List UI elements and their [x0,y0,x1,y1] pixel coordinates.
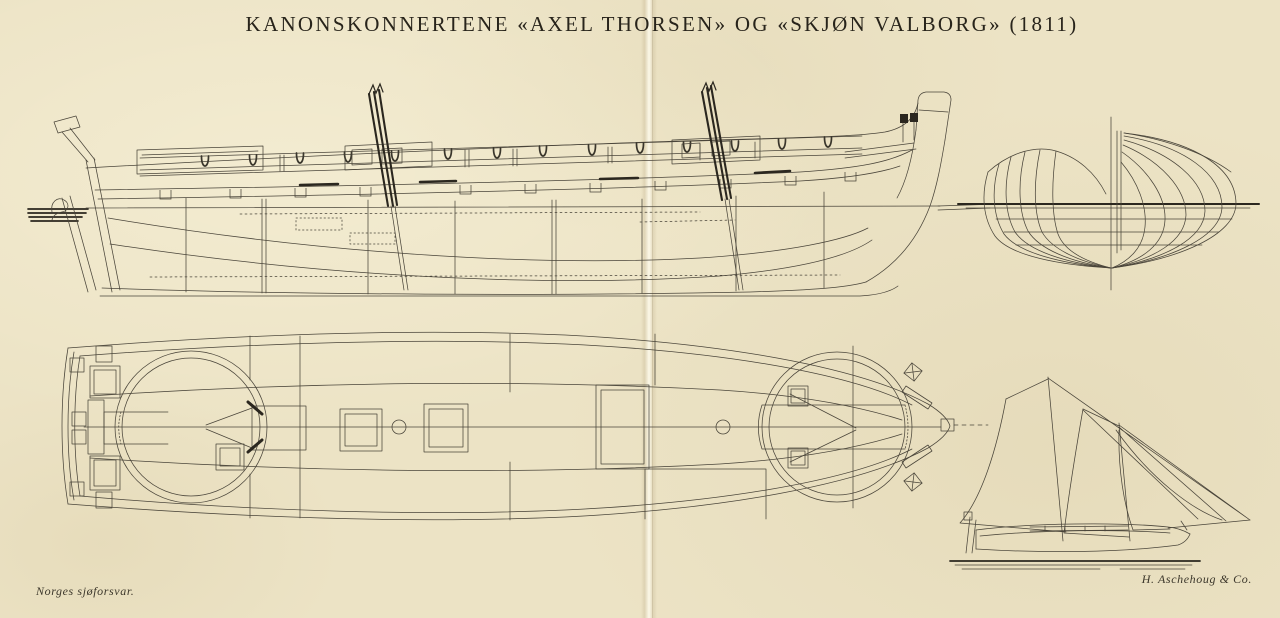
oarlock-fork-icon [444,149,451,159]
oarlock-fork-icon [539,146,546,156]
oarlock-fork-icon [493,148,500,158]
scanned-plate: KANONSKONNERTENE «AXEL THORSEN» OG «SKJØ… [0,0,1280,618]
aft-sections [984,149,1111,268]
oarlock-fork-icon [588,145,595,155]
stanchion [460,185,471,194]
oarlock-fork-icon [201,156,208,166]
credit-right: H. Aschehoug & Co. [1142,572,1252,587]
body-plan-view [958,117,1259,290]
stanchion [525,184,536,193]
sail-plan-view [950,377,1250,569]
oar-rail [140,136,862,176]
oarlock-fork-icon [249,155,256,165]
oarlock-fork-icon [344,152,351,162]
oarlock-fork-icon [636,143,643,153]
stanchion [590,183,601,192]
bulwark-stanchions [160,172,856,199]
sail-plan-waterline [950,561,1200,569]
stanchion [655,181,666,190]
stanchion [360,187,371,196]
oarlock-fork-icon [296,153,303,163]
stanchion [785,176,796,185]
sheer-plan-view [28,82,998,296]
hull-profile [86,92,951,296]
oarlock-fork-icon [731,141,738,151]
fore-sections [1112,131,1236,268]
sail-outlines [960,378,1250,537]
sail-plan-hull [964,512,1250,553]
ship-plans-drawing [0,0,1280,618]
oarlock-fork-icon [778,139,785,149]
credit-left: Norges sjøforsvar. [36,584,134,599]
sternpost-and-rudder [52,116,120,292]
deck-structures [137,113,918,185]
sail-plan-masts [1048,377,1130,541]
oarlock-fork-icon [824,137,831,147]
deck-plan-view [62,332,988,520]
waterline [28,204,998,221]
